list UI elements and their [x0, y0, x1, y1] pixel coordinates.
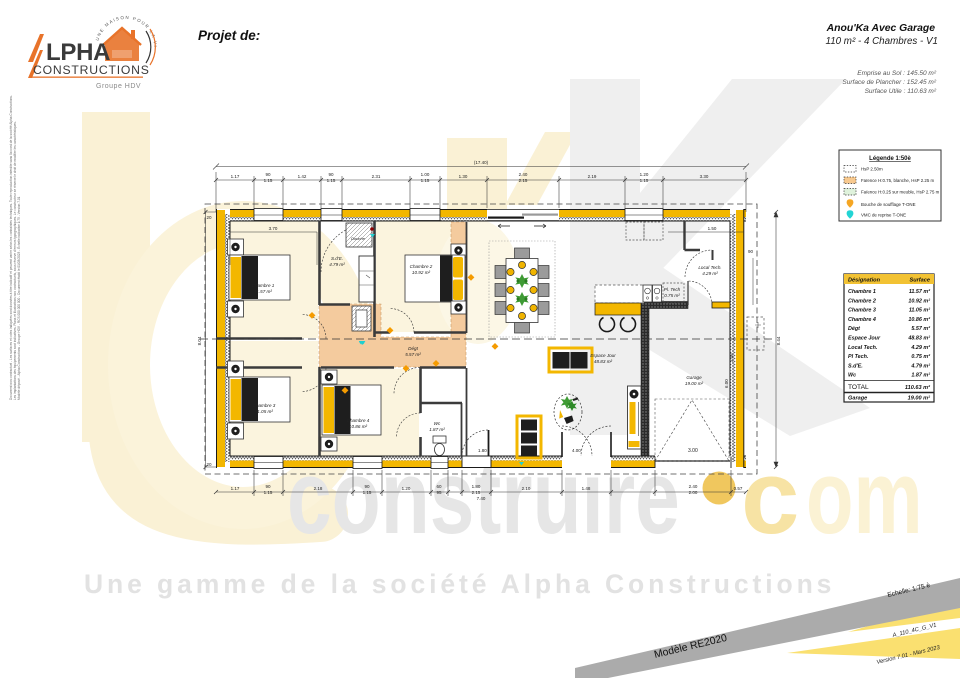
- svg-text:8.04: 8.04: [197, 336, 202, 345]
- svg-text:4.00: 4.00: [572, 448, 581, 453]
- svg-text:1.15: 1.15: [264, 490, 273, 495]
- svg-text:Pl Tech.: Pl Tech.: [848, 354, 869, 360]
- svg-text:Local Tech.: Local Tech.: [698, 265, 721, 270]
- svg-text:11.05 m²: 11.05 m²: [909, 308, 930, 314]
- svg-text:Emprise au Sol : 145.50 m²: Emprise au Sol : 145.50 m²: [857, 70, 937, 77]
- svg-text:Chambre 4: Chambre 4: [848, 317, 876, 323]
- svg-text:11.05 m²: 11.05 m²: [255, 409, 273, 414]
- svg-text:1.15: 1.15: [327, 178, 336, 183]
- svg-text:Faïence H:0.25 sur meuble, HsP: Faïence H:0.25 sur meuble, HsP 2.75 m: [861, 190, 940, 195]
- svg-text:Modèle déposé - Alpha Construc: Modèle déposé - Alpha Constructions - Gr…: [16, 196, 21, 400]
- svg-text:Wc: Wc: [434, 421, 441, 426]
- svg-text:5.57 m²: 5.57 m²: [405, 352, 421, 357]
- svg-text:1.50: 1.50: [708, 226, 717, 231]
- svg-text:90: 90: [328, 172, 334, 177]
- svg-text:CONSTRUCTIONS: CONSTRUCTIONS: [33, 63, 150, 77]
- svg-text:Surface de Plancher : 152.45 m: Surface de Plancher : 152.45 m²: [842, 79, 936, 86]
- svg-text:Groupe HDV: Groupe HDV: [96, 83, 141, 90]
- svg-text:3.08: 3.08: [729, 353, 734, 362]
- svg-text:HsP 2.50m: HsP 2.50m: [861, 167, 883, 172]
- svg-text:90: 90: [265, 172, 271, 177]
- svg-text:2.40: 2.40: [519, 172, 528, 177]
- svg-text:Projet de:: Projet de:: [198, 28, 260, 43]
- svg-text:Local Tech.: Local Tech.: [848, 345, 878, 351]
- svg-text:Chambre 1: Chambre 1: [848, 289, 876, 295]
- svg-text:1.48: 1.48: [582, 486, 591, 491]
- svg-text:S.d'E.: S.d'E.: [848, 363, 863, 369]
- svg-text:10.86 m²: 10.86 m²: [908, 317, 930, 323]
- svg-text:3.70: 3.70: [269, 226, 278, 231]
- svg-text:TOTAL: TOTAL: [848, 384, 869, 391]
- svg-text:4.79 m²: 4.79 m²: [329, 262, 345, 267]
- svg-text:Chambre 1: Chambre 1: [252, 283, 275, 288]
- svg-text:20: 20: [206, 462, 212, 467]
- svg-text:20: 20: [206, 215, 212, 220]
- svg-text:2.10: 2.10: [522, 486, 531, 491]
- svg-text:Garage: Garage: [848, 396, 867, 402]
- svg-text:0.75 m²: 0.75 m²: [911, 354, 930, 360]
- svg-text:19.00 m²: 19.00 m²: [908, 395, 931, 402]
- svg-text:95: 95: [436, 490, 442, 495]
- svg-text:1.80: 1.80: [478, 448, 487, 453]
- svg-text:11.57 m²: 11.57 m²: [909, 289, 930, 295]
- svg-text:6.00: 6.00: [724, 379, 729, 388]
- svg-text:1.80: 1.80: [472, 484, 481, 489]
- svg-text:S.d'E.: S.d'E.: [331, 256, 343, 261]
- svg-text:2.19: 2.19: [588, 174, 597, 179]
- svg-text:90: 90: [364, 484, 370, 489]
- svg-text:0.75 m²: 0.75 m²: [664, 293, 680, 298]
- svg-text:11.57 m²: 11.57 m²: [254, 289, 272, 294]
- svg-text:Douche: Douche: [351, 236, 366, 241]
- svg-text:VMC de reprise T-ONE: VMC de reprise T-ONE: [861, 213, 906, 218]
- svg-text:4.29 m²: 4.29 m²: [910, 345, 930, 351]
- svg-text:4.79 m²: 4.79 m²: [910, 363, 930, 369]
- svg-text:10.92 m²: 10.92 m²: [412, 270, 431, 275]
- svg-text:110.63 m²: 110.63 m²: [905, 384, 930, 391]
- svg-text:c: c: [741, 439, 799, 556]
- svg-text:1.20: 1.20: [640, 172, 649, 177]
- svg-text:Espace Jour: Espace Jour: [848, 336, 881, 342]
- svg-text:2.18: 2.18: [314, 486, 323, 491]
- svg-text:1.17: 1.17: [231, 486, 240, 491]
- svg-text:Légende 1:50è: Légende 1:50è: [869, 156, 911, 162]
- svg-text:LPHA: LPHA: [46, 39, 110, 66]
- svg-text:1.15: 1.15: [264, 178, 273, 183]
- svg-text:Chambre 2: Chambre 2: [848, 298, 876, 304]
- svg-text:Bouche de soufflage T-ONE: Bouche de soufflage T-ONE: [861, 202, 916, 207]
- svg-text:2.40: 2.40: [689, 484, 698, 489]
- svg-text:Pl. Tech: Pl. Tech: [664, 287, 681, 292]
- svg-text:Dégt: Dégt: [408, 346, 418, 351]
- svg-text:Anou'Ka Avec Garage: Anou'Ka Avec Garage: [826, 23, 936, 34]
- svg-text:1.00: 1.00: [421, 172, 430, 177]
- svg-text:7.40: 7.40: [477, 496, 486, 501]
- svg-text:110 m² - 4 Chambres - V1: 110 m² - 4 Chambres - V1: [825, 36, 938, 47]
- svg-text:1.20: 1.20: [402, 486, 411, 491]
- svg-text:2.00: 2.00: [689, 490, 698, 495]
- svg-text:0.57: 0.57: [734, 486, 743, 491]
- svg-text:2.15: 2.15: [472, 490, 481, 495]
- svg-text:Chambre 2: Chambre 2: [410, 264, 433, 269]
- svg-text:1.87 m²: 1.87 m²: [429, 427, 445, 432]
- svg-text:Chambre 3: Chambre 3: [253, 403, 276, 408]
- svg-text:Wc: Wc: [848, 373, 856, 379]
- svg-text:5.57 m²: 5.57 m²: [911, 326, 930, 332]
- svg-text:1.42: 1.42: [298, 174, 307, 179]
- svg-text:8.44: 8.44: [776, 336, 781, 345]
- svg-text:19.00 m²: 19.00 m²: [685, 381, 704, 386]
- svg-text:1.15: 1.15: [640, 178, 649, 183]
- svg-text:4.29 m²: 4.29 m²: [702, 271, 718, 276]
- svg-text:1.15: 1.15: [363, 490, 372, 495]
- svg-text:2.15: 2.15: [519, 178, 528, 183]
- svg-text:Surface Utile : 110.63 m²: Surface Utile : 110.63 m²: [865, 88, 937, 95]
- svg-text:10.92 m²: 10.92 m²: [908, 298, 930, 304]
- svg-text:(17.40): (17.40): [474, 160, 489, 165]
- svg-text:3.30: 3.30: [700, 174, 709, 179]
- svg-text:10.86 m²: 10.86 m²: [349, 424, 368, 429]
- svg-text:1.30: 1.30: [459, 174, 468, 179]
- svg-text:Garage: Garage: [686, 375, 702, 380]
- svg-text:Une gamme de la société Alpha: Une gamme de la société Alpha Constructi…: [84, 569, 835, 599]
- svg-text:48.83 m²: 48.83 m²: [594, 359, 613, 364]
- svg-text:60: 60: [436, 484, 442, 489]
- svg-text:1.17: 1.17: [231, 174, 240, 179]
- svg-text:1.87 m²: 1.87 m²: [911, 373, 930, 379]
- svg-text:90: 90: [748, 249, 754, 254]
- svg-text:Espace Jour: Espace Jour: [590, 353, 616, 358]
- svg-text:48.83 m²: 48.83 m²: [907, 336, 930, 342]
- svg-text:Désignation: Désignation: [848, 278, 881, 284]
- svg-text:Chambre 4: Chambre 4: [347, 418, 370, 423]
- svg-text:om: om: [806, 438, 923, 556]
- svg-text:2.31: 2.31: [372, 174, 381, 179]
- svg-text:Faïence H:0.75, blanche, HsP 2: Faïence H:0.75, blanche, HsP 2.25 m: [861, 178, 934, 183]
- svg-text:Chambre 3: Chambre 3: [848, 308, 876, 314]
- svg-text:Dégt: Dégt: [848, 326, 860, 332]
- svg-text:Surface: Surface: [909, 278, 930, 284]
- svg-text:90: 90: [265, 484, 271, 489]
- svg-text:1.15: 1.15: [421, 178, 430, 183]
- svg-text:3.00: 3.00: [688, 448, 698, 454]
